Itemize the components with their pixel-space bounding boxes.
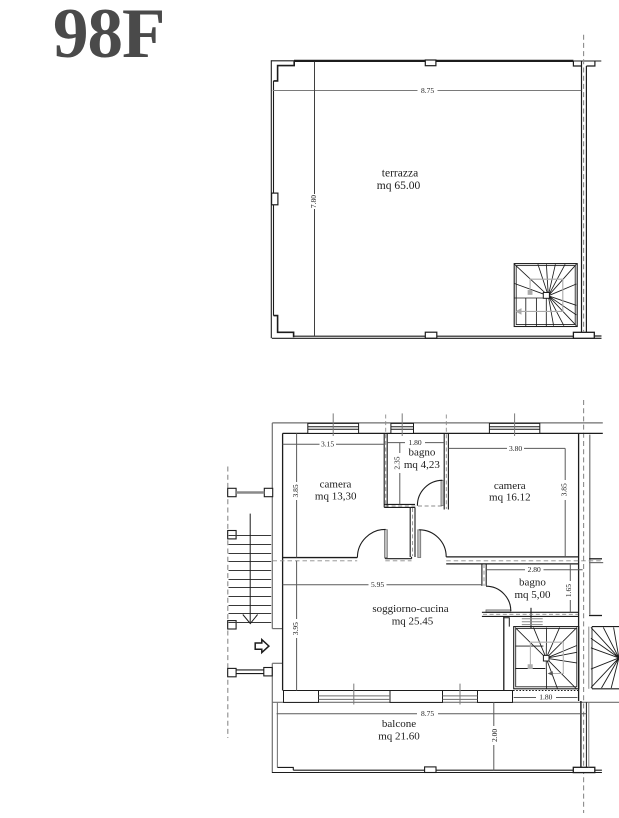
- svg-text:3.80: 3.80: [509, 444, 522, 453]
- svg-text:bagno: bagno: [409, 446, 436, 458]
- svg-text:soggiorno-cucina: soggiorno-cucina: [372, 603, 448, 615]
- svg-text:98F: 98F: [53, 0, 164, 73]
- svg-text:mq 25.45: mq 25.45: [392, 615, 434, 627]
- svg-text:5.95: 5.95: [371, 580, 384, 589]
- svg-text:3.85: 3.85: [291, 484, 300, 497]
- svg-text:camera: camera: [494, 480, 526, 492]
- svg-text:mq 16.12: mq 16.12: [489, 492, 531, 504]
- svg-text:3.95: 3.95: [291, 622, 300, 635]
- svg-text:terrazza: terrazza: [382, 168, 418, 180]
- svg-text:bagno: bagno: [519, 576, 546, 588]
- svg-text:mq 21.60: mq 21.60: [378, 731, 420, 743]
- svg-text:mq 5,00: mq 5,00: [514, 589, 551, 601]
- svg-text:7.80: 7.80: [309, 195, 318, 208]
- svg-text:mq 13,30: mq 13,30: [315, 491, 357, 503]
- svg-text:3.85: 3.85: [560, 483, 569, 496]
- svg-text:8.75: 8.75: [421, 86, 434, 95]
- svg-text:camera: camera: [320, 478, 352, 490]
- svg-text:3.15: 3.15: [321, 440, 334, 449]
- svg-text:1.80: 1.80: [539, 693, 552, 702]
- svg-text:8.75: 8.75: [421, 709, 434, 718]
- svg-text:mq 65.00: mq 65.00: [377, 180, 421, 192]
- svg-text:2.00: 2.00: [490, 729, 499, 742]
- svg-text:2.80: 2.80: [528, 565, 541, 574]
- svg-text:2.35: 2.35: [393, 456, 402, 469]
- svg-text:mq 4,23: mq 4,23: [404, 459, 441, 471]
- svg-text:1.65: 1.65: [564, 584, 573, 597]
- svg-text:balcone: balcone: [382, 718, 416, 730]
